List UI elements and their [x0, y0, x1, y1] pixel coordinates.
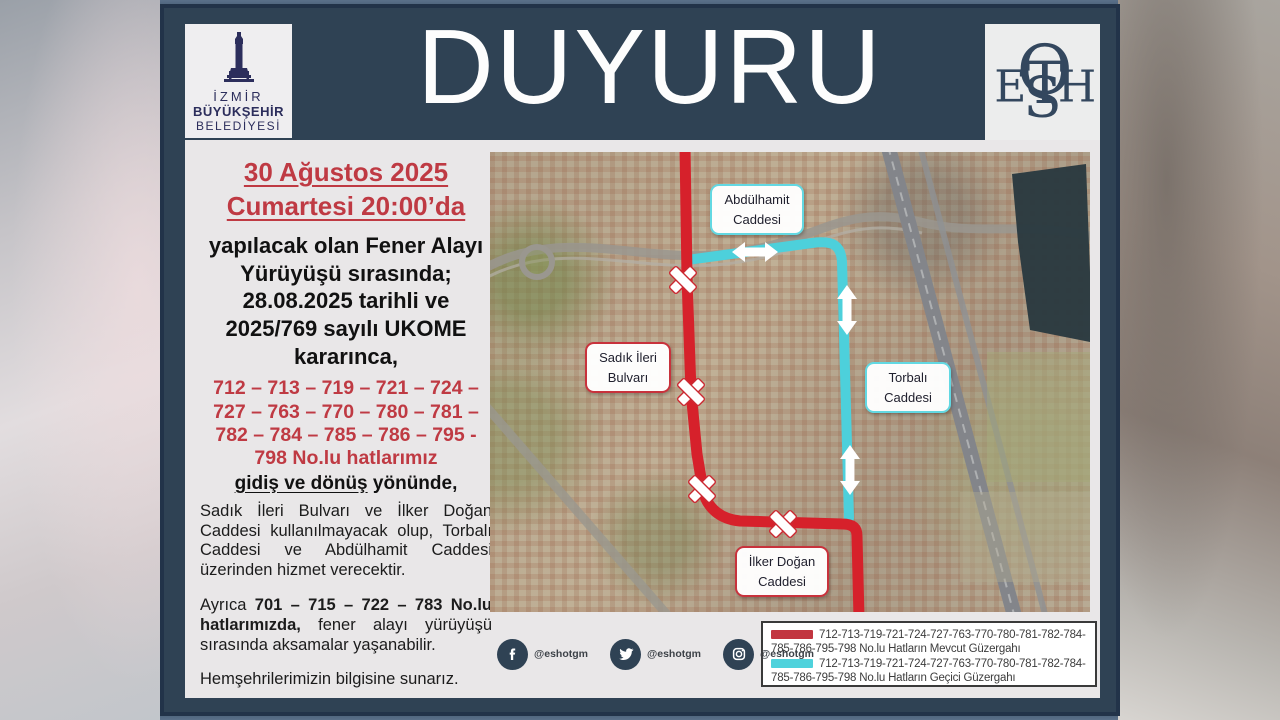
affected-routes: 712 – 713 – 719 – 721 – 724 – 727 – 763 … — [200, 377, 492, 471]
eshot-monogram-logo: O S E H T — [985, 24, 1100, 142]
direction-rest: yönünde, — [368, 473, 458, 494]
announcement-poster: DUYURU İZMİR BÜYÜKŞEHİR BELEDİYESİ O S — [160, 4, 1120, 716]
event-date: 30 Ağustos 2025 — [200, 156, 492, 190]
facebook-item: @eshotgm — [497, 639, 588, 670]
poster-title: DUYURU — [294, 12, 1006, 123]
twitter-item: @eshotgm — [610, 639, 701, 670]
twitter-icon — [610, 639, 641, 670]
legend-entry-current: 712-713-719-721-724-727-763-770-780-781-… — [771, 628, 1087, 657]
letterbox-blur-right — [1118, 0, 1280, 720]
monogram-letter-t: T — [1025, 49, 1064, 117]
legend-entry-temporary: 712-713-719-721-724-727-763-770-780-781-… — [771, 657, 1087, 686]
additional-routes-paragraph: Ayrıca 701 – 715 – 722 – 783 No.lu hatla… — [200, 596, 492, 655]
boulevard-road — [490, 404, 670, 612]
twitter-handle: @eshotgm — [647, 648, 701, 660]
field-patch — [987, 352, 1090, 482]
label-line: Sadık İleri — [593, 348, 663, 368]
clock-tower-icon — [218, 31, 260, 87]
label-line: Caddesi — [743, 572, 821, 592]
field-patch-2 — [960, 492, 1090, 582]
screenshot-stage: DUYURU İZMİR BÜYÜKŞEHİR BELEDİYESİ O S — [0, 0, 1280, 720]
instagram-icon — [723, 639, 754, 670]
instagram-handle: @eshotgm — [760, 648, 814, 660]
event-time: Cumartesi 20:00’da — [200, 190, 492, 224]
instagram-item: @eshotgm — [723, 639, 814, 670]
label-line: İlker Doğan — [743, 552, 821, 572]
monogram-letter-e: E — [994, 61, 1026, 112]
izmir-logo-line1: İZMİR — [213, 89, 263, 104]
label-line: Torbalı — [873, 368, 943, 388]
label-line: Caddesi — [873, 388, 943, 408]
direction-underlined: gidiş ve dönüş — [235, 473, 368, 494]
map-label-ilker-dogan: İlker Doğan Caddesi — [735, 546, 829, 597]
label-line: Abdülhamit — [718, 190, 796, 210]
label-line: Caddesi — [718, 210, 796, 230]
map-label-sadik-ileri: Sadık İleri Bulvarı — [585, 342, 671, 393]
facebook-handle: @eshotgm — [534, 648, 588, 660]
facebook-icon — [497, 639, 528, 670]
direction-note: gidiş ve dönüş yönünde, — [200, 473, 492, 495]
label-line: Bulvarı — [593, 368, 663, 388]
announcement-text-column: 30 Ağustos 2025 Cumartesi 20:00’da yapıl… — [200, 156, 492, 689]
intro-text: yapılacak olan Fener Alayı Yürüyüşü sıra… — [200, 232, 492, 372]
letterbox-blur-left — [0, 0, 162, 720]
social-media-row: @eshotgm @eshotgm — [497, 634, 757, 674]
ayrica-prefix: Ayrıca — [200, 596, 255, 614]
map-label-torbali: Torbalı Caddesi — [865, 362, 951, 413]
legend-text-temporary: 712-713-719-721-724-727-763-770-780-781-… — [771, 658, 1086, 684]
satellite-route-map: Abdülhamit Caddesi Sadık İleri Bulvarı T… — [490, 152, 1090, 612]
izmir-municipality-logo: İZMİR BÜYÜKŞEHİR BELEDİYESİ — [185, 24, 292, 138]
closing-line: Hemşehrilerimizin bilgisine sunarız. — [200, 670, 492, 689]
legend-text-current: 712-713-719-721-724-727-763-770-780-781-… — [771, 629, 1086, 655]
roundabout — [522, 247, 552, 277]
izmir-logo-line2: BÜYÜKŞEHİR — [193, 104, 284, 119]
pond-water — [1012, 164, 1090, 342]
map-label-abdulhamit: Abdülhamit Caddesi — [710, 184, 804, 235]
detour-paragraph: Sadık İleri Bulvarı ve İlker Doğan Cadde… — [200, 502, 492, 581]
content-panel: 30 Ağustos 2025 Cumartesi 20:00’da yapıl… — [185, 140, 1100, 698]
izmir-logo-line3: BELEDİYESİ — [196, 119, 281, 133]
